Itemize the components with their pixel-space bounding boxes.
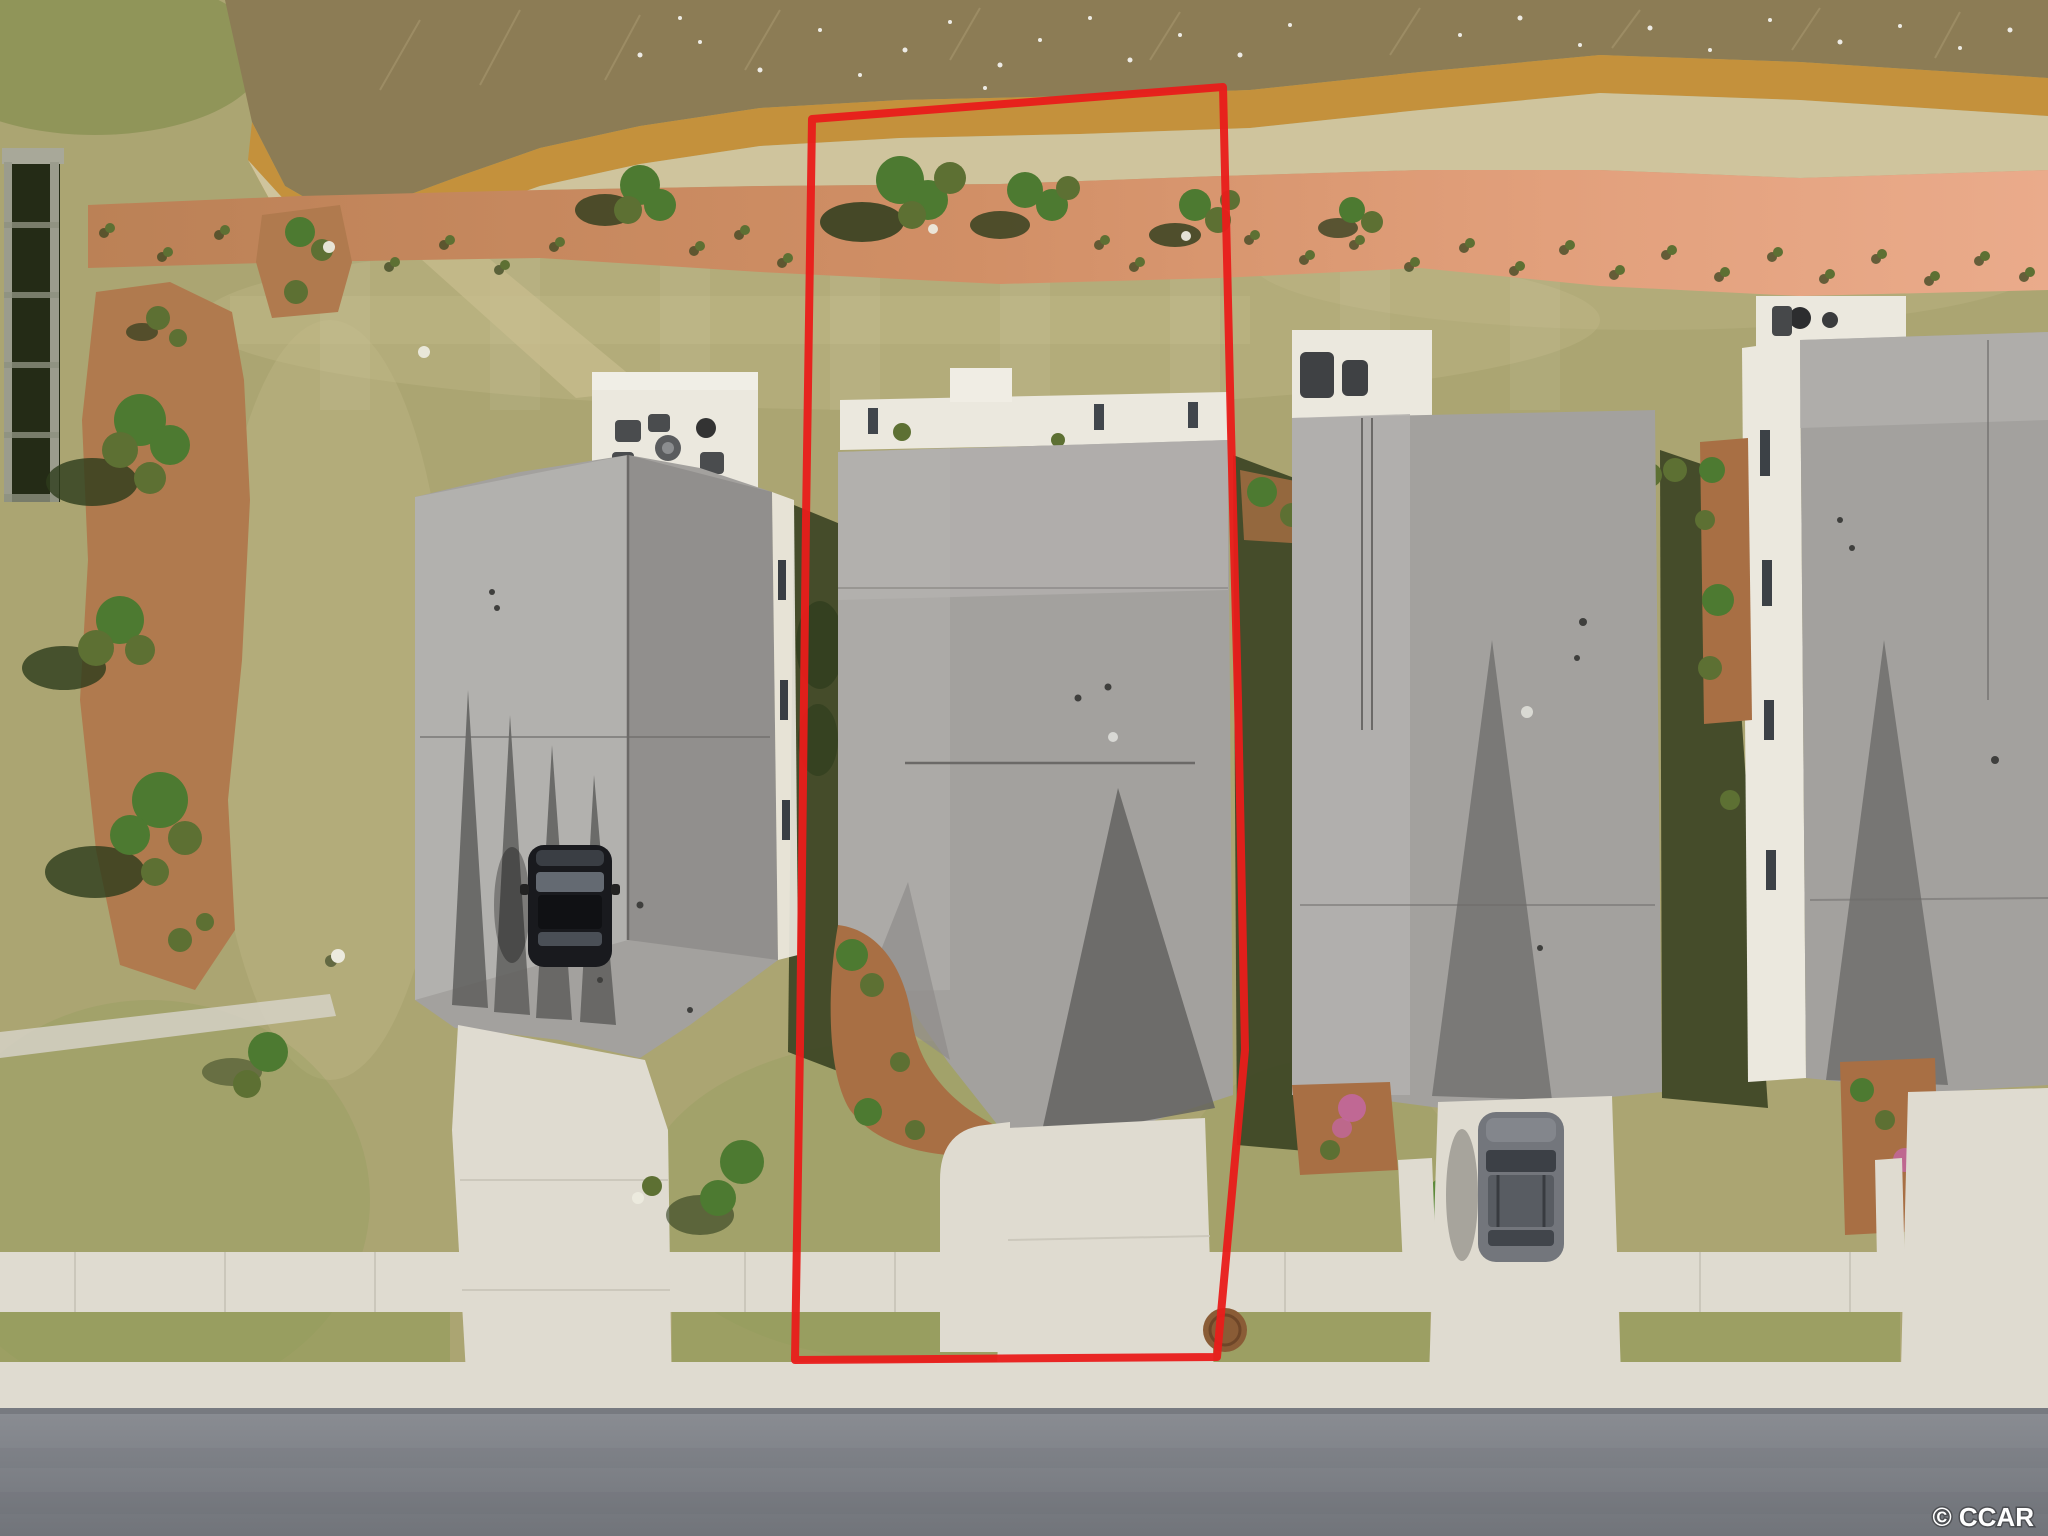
- house-2-rear-wall: [840, 392, 1228, 450]
- car-black: [494, 845, 620, 967]
- driveway-4: [1900, 1088, 2048, 1408]
- driveway-2: [995, 1118, 1215, 1408]
- garden-fence: [2, 148, 64, 502]
- skylight: [1521, 706, 1533, 718]
- aerial-scene: © CCAR: [0, 0, 2048, 1536]
- aerial-photo: © CCAR: [0, 0, 2048, 1536]
- street: [0, 1408, 2048, 1536]
- driveway-3: [1428, 1096, 1622, 1408]
- watermark: © CCAR: [1933, 1502, 2035, 1532]
- roof-vent-light: [1108, 732, 1118, 742]
- house-4-front-walk: [1875, 1158, 1906, 1312]
- house-2-bay: [950, 368, 1012, 402]
- manhole-cover: [1203, 1308, 1247, 1352]
- car-gray: [1446, 1112, 1564, 1262]
- utility-marker: [331, 949, 345, 963]
